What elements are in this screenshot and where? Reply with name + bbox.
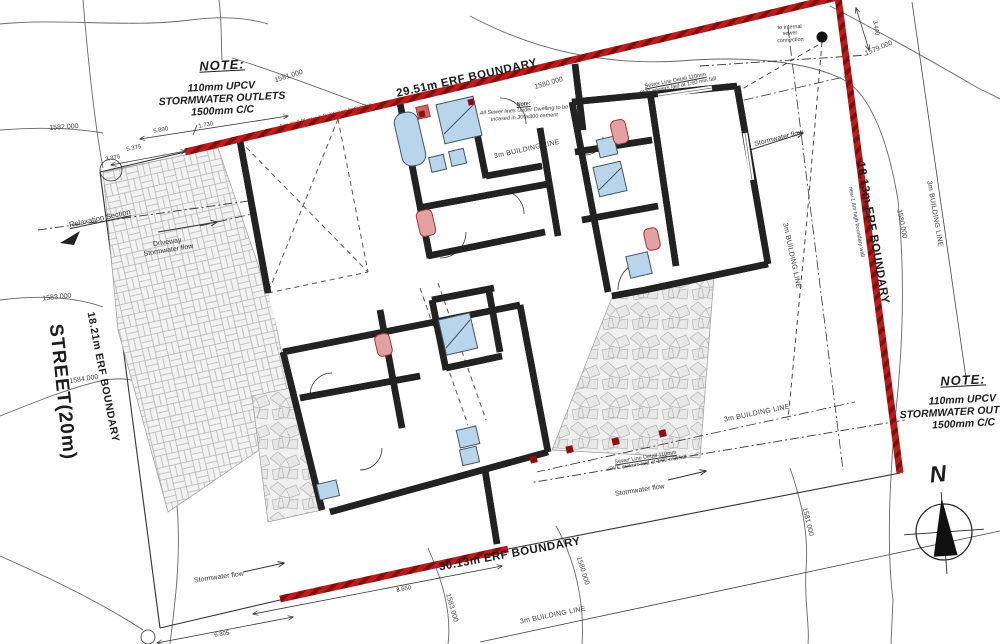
- sewer-connection-note: to internal sewer connection: [776, 24, 804, 44]
- relaxation-arrowhead: [60, 231, 80, 245]
- appliance-2: [459, 446, 479, 465]
- basin-4: [626, 252, 652, 278]
- note-left-title: NOTE:: [199, 57, 245, 74]
- north-compass: [901, 489, 987, 576]
- north-label: N: [928, 460, 947, 488]
- basin-2: [449, 148, 467, 166]
- note-right-body: 110mm UPCV STORMWATER OUTLETS 1500mm C/C: [899, 391, 1000, 434]
- note-right-title: NOTE:: [940, 372, 986, 389]
- sewer-manhole-dot: [817, 32, 828, 43]
- site-plan-canvas: NOTE: 110mm UPCV STORMWATER OUTLETS 1500…: [0, 0, 1000, 644]
- survey-peg-circle-bottom: [141, 630, 155, 644]
- shower-2: [593, 161, 627, 197]
- note-left-body: 110mm UPCV STORMWATER OUTLETS 1500mm C/C: [158, 78, 287, 121]
- site-plan-drawing: [0, 0, 1000, 644]
- basin-1: [429, 154, 447, 172]
- shower-1: [436, 96, 482, 144]
- appliance-1: [456, 426, 480, 448]
